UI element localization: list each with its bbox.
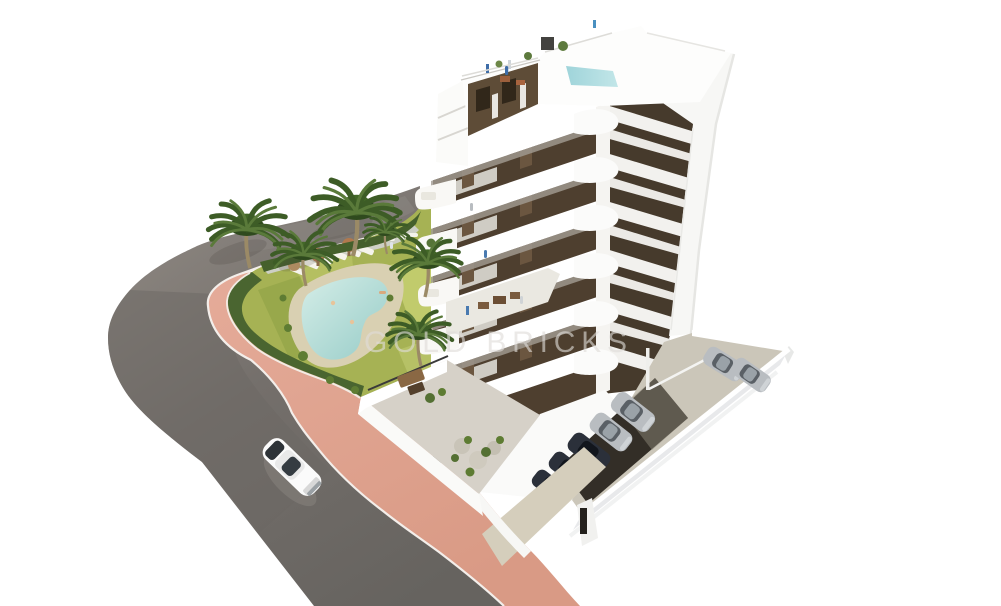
svg-text:GOLD BRICKS: GOLD BRICKS <box>364 326 633 359</box>
